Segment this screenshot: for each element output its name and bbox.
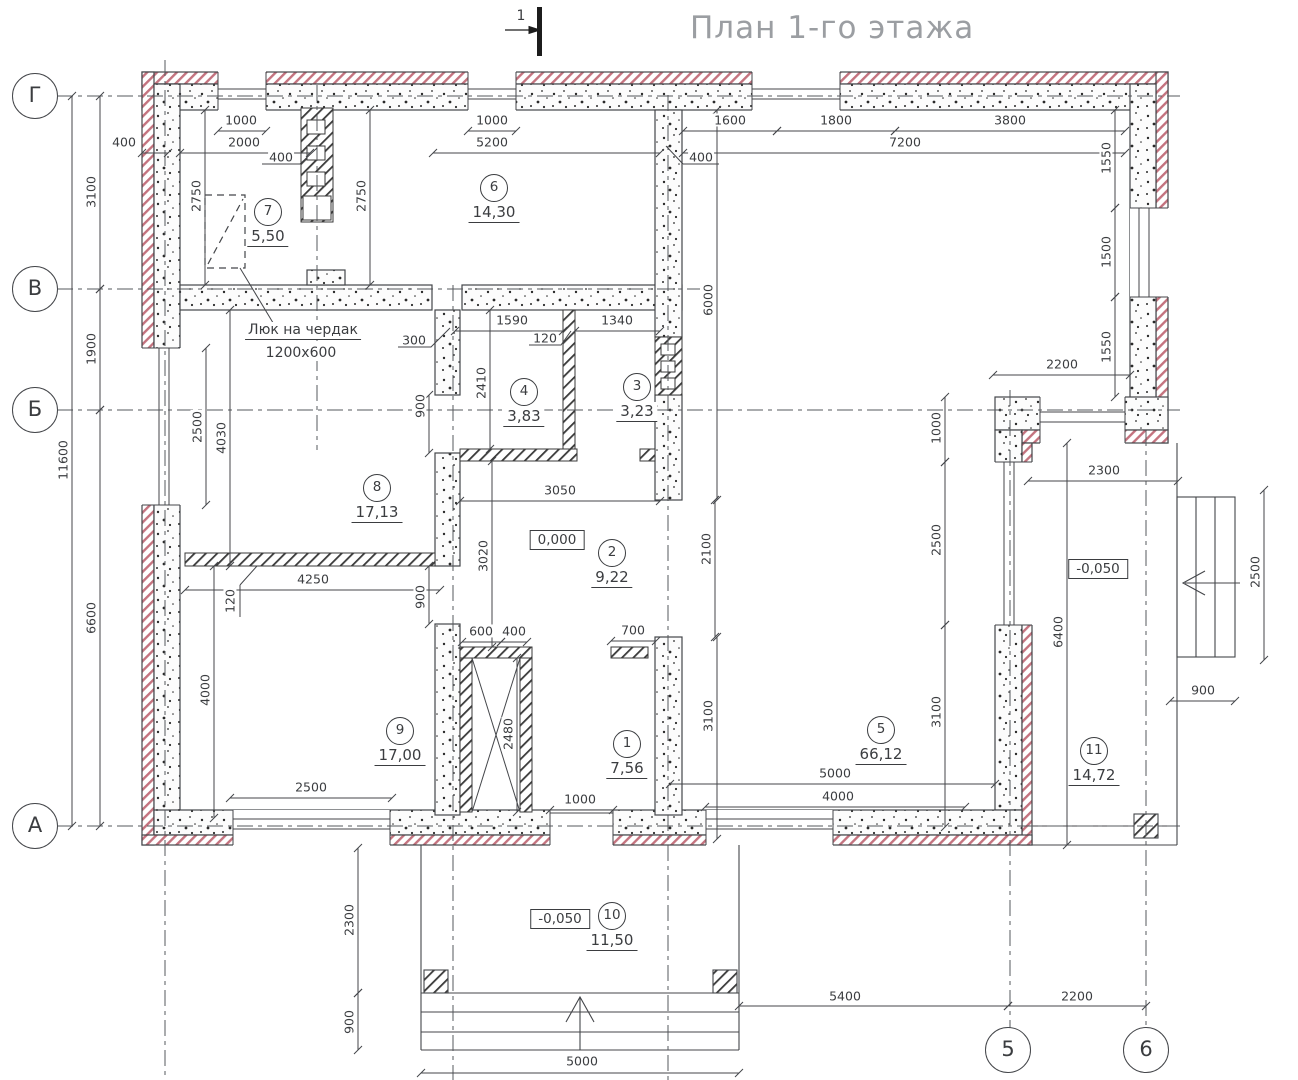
dimension-label: 5400 xyxy=(828,989,862,1002)
dimension-label: 2500 xyxy=(294,780,328,793)
dimension-label: 2410 xyxy=(474,366,487,400)
dimension-label: 4000 xyxy=(198,673,211,707)
axis-bubble-5: 5 xyxy=(985,1027,1031,1073)
dimension-label: 1500 xyxy=(1099,235,1112,269)
room-area-6: 14,30 xyxy=(469,203,520,223)
room-number-10: 10 xyxy=(598,902,626,930)
room-area-4: 3,83 xyxy=(503,407,544,427)
dimension-label: 5000 xyxy=(818,766,852,779)
chimney-blocks xyxy=(301,108,682,395)
dimension-label: 900 xyxy=(1190,683,1216,696)
dimension-label: 1900 xyxy=(84,332,97,366)
dimension-label: 2200 xyxy=(1045,357,1079,370)
axis-bubble-В: В xyxy=(12,266,58,312)
dimension-label: 2300 xyxy=(1087,463,1121,476)
porch xyxy=(421,845,739,1050)
axis-bubble-Б: Б xyxy=(12,387,58,433)
dimension-label: 700 xyxy=(620,623,646,636)
dimension-label: 2750 xyxy=(189,179,202,213)
dimension-label: 400 xyxy=(501,624,527,637)
room-number-5: 5 xyxy=(867,716,895,744)
floor-plan-drawing: План 1-го этажа 1 Люк на чердак 1200x600… xyxy=(0,0,1298,1080)
dimension-label: 1000 xyxy=(224,113,258,126)
dimension-label: 11600 xyxy=(56,439,69,481)
partitions xyxy=(185,310,655,812)
dimension-label: 400 xyxy=(111,135,137,148)
room-area-5: 66,12 xyxy=(856,745,907,765)
dimension-label: 1600 xyxy=(713,113,747,126)
dimension-label: 7200 xyxy=(888,135,922,148)
dimension-label: 2480 xyxy=(501,717,514,751)
room-number-4: 4 xyxy=(510,378,538,406)
dimension-label: 2500 xyxy=(190,410,203,444)
room-area-7: 5,50 xyxy=(247,227,288,247)
elevation-mark: 0,000 xyxy=(530,530,585,550)
room-area-1: 7,56 xyxy=(606,759,647,779)
dimension-label: 6600 xyxy=(84,601,97,635)
dimension-label: 4000 xyxy=(821,789,855,802)
dimension-label: 400 xyxy=(688,150,714,163)
dimension-label: 900 xyxy=(413,584,426,610)
dimension-label: 4030 xyxy=(214,421,227,455)
dimension-label: 1000 xyxy=(475,113,509,126)
axis-bubble-6: 6 xyxy=(1123,1027,1169,1073)
attic-hatch-annotation: Люк на чердак xyxy=(245,322,361,340)
dimension-label: 2000 xyxy=(227,135,261,148)
elevation-mark: -0,050 xyxy=(1068,559,1128,579)
dimension-label: 2750 xyxy=(354,179,367,213)
attic-hatch-size: 1200x600 xyxy=(266,345,337,361)
room-area-3: 3,23 xyxy=(616,402,657,422)
dimension-label: 1800 xyxy=(819,113,853,126)
dimension-label: 3800 xyxy=(993,113,1027,126)
dimension-label: 900 xyxy=(413,393,426,419)
dimension-label: 2200 xyxy=(1060,989,1094,1002)
dimension-label: 1000 xyxy=(563,792,597,805)
room-area-8: 17,13 xyxy=(352,503,403,523)
dimension-label: 400 xyxy=(268,150,294,163)
dimension-label: 3050 xyxy=(543,483,577,496)
dimension-label: 1000 xyxy=(929,411,942,445)
dimension-label: 2300 xyxy=(342,903,355,937)
room-area-10: 11,50 xyxy=(587,931,638,951)
dimension-label: 120 xyxy=(532,331,558,344)
dimension-label: 6000 xyxy=(701,283,714,317)
dimension-label: 120 xyxy=(223,588,236,614)
axis-bubble-А: А xyxy=(12,803,58,849)
dimension-label: 5000 xyxy=(565,1054,599,1067)
room-number-9: 9 xyxy=(386,717,414,745)
dimension-label: 3100 xyxy=(929,695,942,729)
elevation-mark: -0,050 xyxy=(530,909,590,929)
dimension-label: 1550 xyxy=(1099,330,1112,364)
dimension-label: 6400 xyxy=(1051,615,1064,649)
dimension-label: 300 xyxy=(401,333,427,346)
room-number-2: 2 xyxy=(598,539,626,567)
section-mark-label: 1 xyxy=(517,8,526,24)
terrace-stairs xyxy=(1177,497,1240,657)
room-area-2: 9,22 xyxy=(591,568,632,588)
room-number-7: 7 xyxy=(254,198,282,226)
drawing-title: План 1-го этажа xyxy=(690,10,974,46)
dimension-label: 1340 xyxy=(600,313,634,326)
dimension-label: 5200 xyxy=(475,135,509,148)
room-number-8: 8 xyxy=(363,474,391,502)
dimension-label: 2500 xyxy=(1248,555,1261,589)
room-area-11: 14,72 xyxy=(1069,766,1120,786)
room-area-9: 17,00 xyxy=(375,746,426,766)
dimension-label: 3020 xyxy=(476,539,489,573)
axis-bubble-Г: Г xyxy=(12,73,58,119)
room-number-3: 3 xyxy=(623,373,651,401)
dimension-label: 1550 xyxy=(1099,141,1112,175)
room-number-11: 11 xyxy=(1080,737,1108,765)
dimension-label: 1590 xyxy=(495,313,529,326)
dimension-label: 2100 xyxy=(699,532,712,566)
dimension-label: 600 xyxy=(468,624,494,637)
dimension-label: 3100 xyxy=(84,175,97,209)
room-number-6: 6 xyxy=(480,174,508,202)
dimension-label: 4250 xyxy=(296,572,330,585)
dimension-label: 3100 xyxy=(701,699,714,733)
dimension-label: 2500 xyxy=(929,523,942,557)
room-number-1: 1 xyxy=(613,730,641,758)
attic-hatch xyxy=(205,195,245,268)
dimension-label: 900 xyxy=(342,1009,355,1035)
